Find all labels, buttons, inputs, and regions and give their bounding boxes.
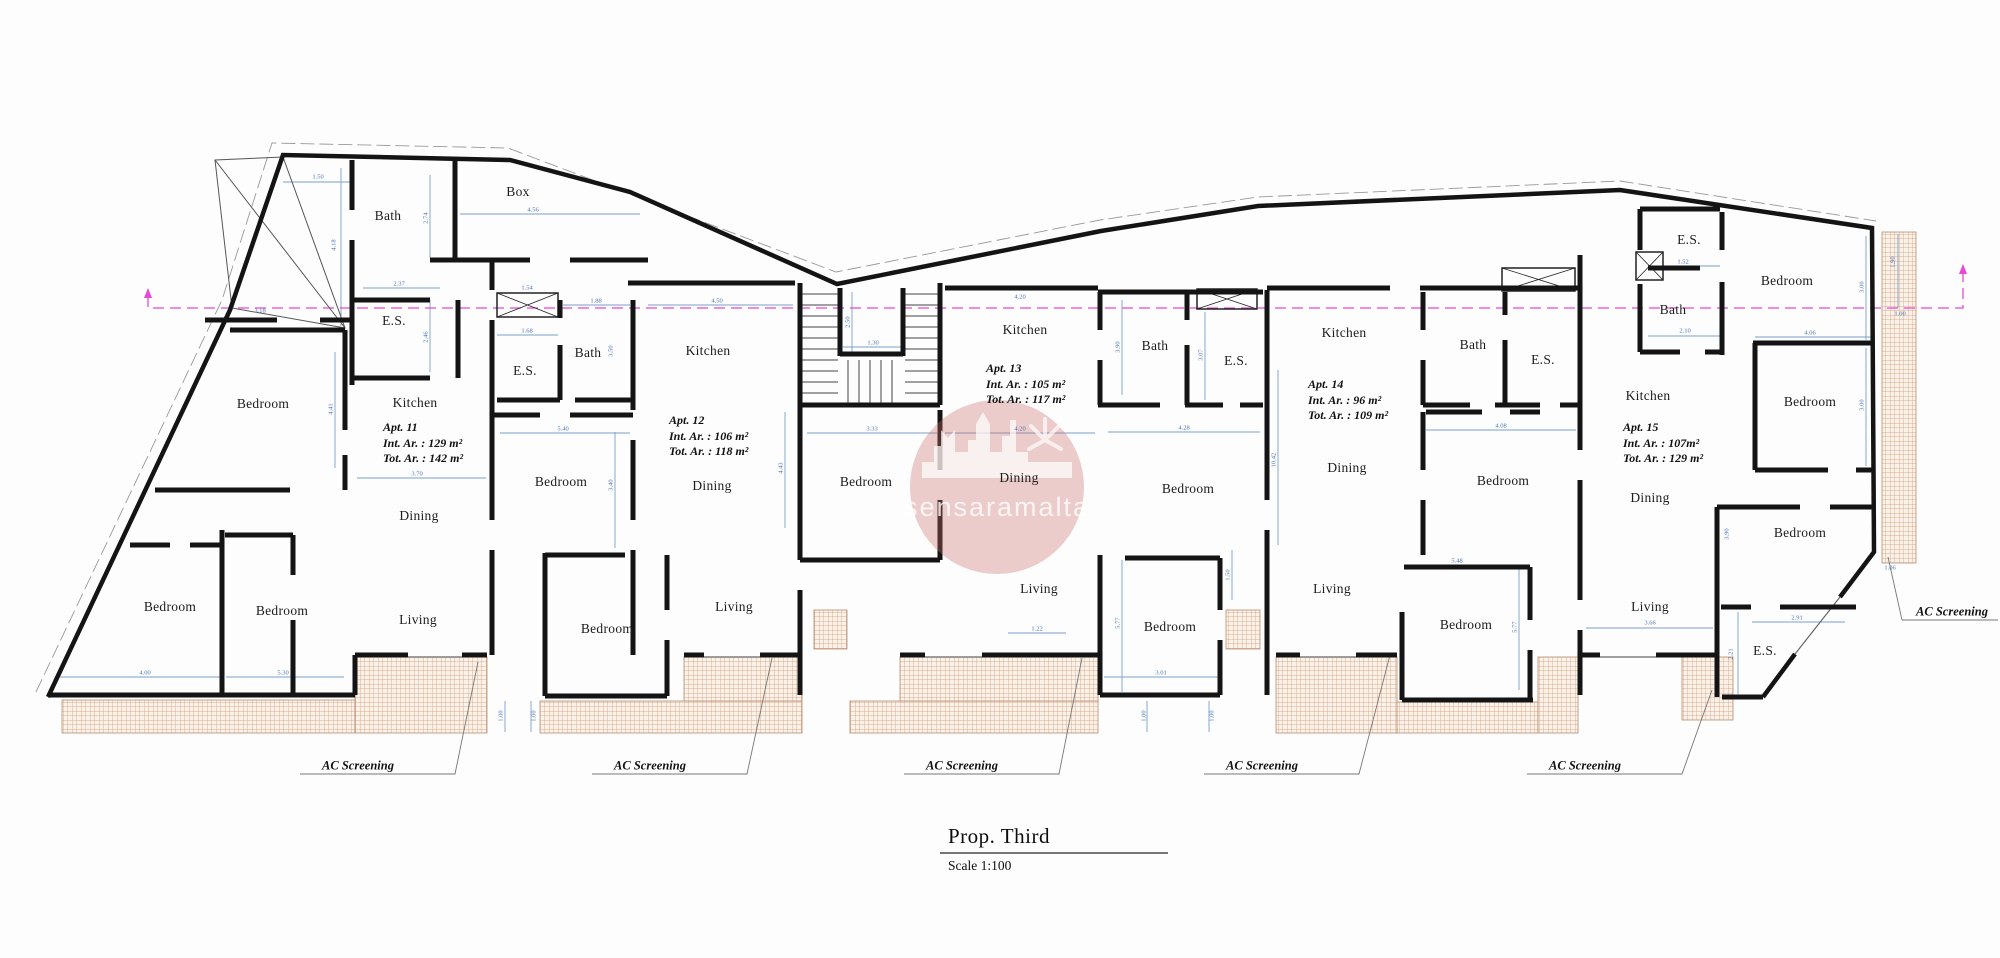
plan-title: Prop. Third	[948, 824, 1050, 849]
watermark: sensaramalta	[904, 400, 1090, 574]
title-block: Prop. Third Scale 1:100	[948, 824, 1050, 874]
staircase-treads	[802, 294, 938, 403]
watermark-text: sensaramalta	[904, 492, 1090, 522]
floorplan-canvas: sensaramalta BathBoxE.S.BedroomKitchenDi…	[0, 0, 2000, 958]
floorplan-drawing: sensaramalta	[0, 0, 2000, 958]
ac-leader-lines	[300, 557, 1998, 774]
plan-scale: Scale 1:100	[948, 858, 1050, 874]
glazing-lines	[408, 597, 1840, 657]
